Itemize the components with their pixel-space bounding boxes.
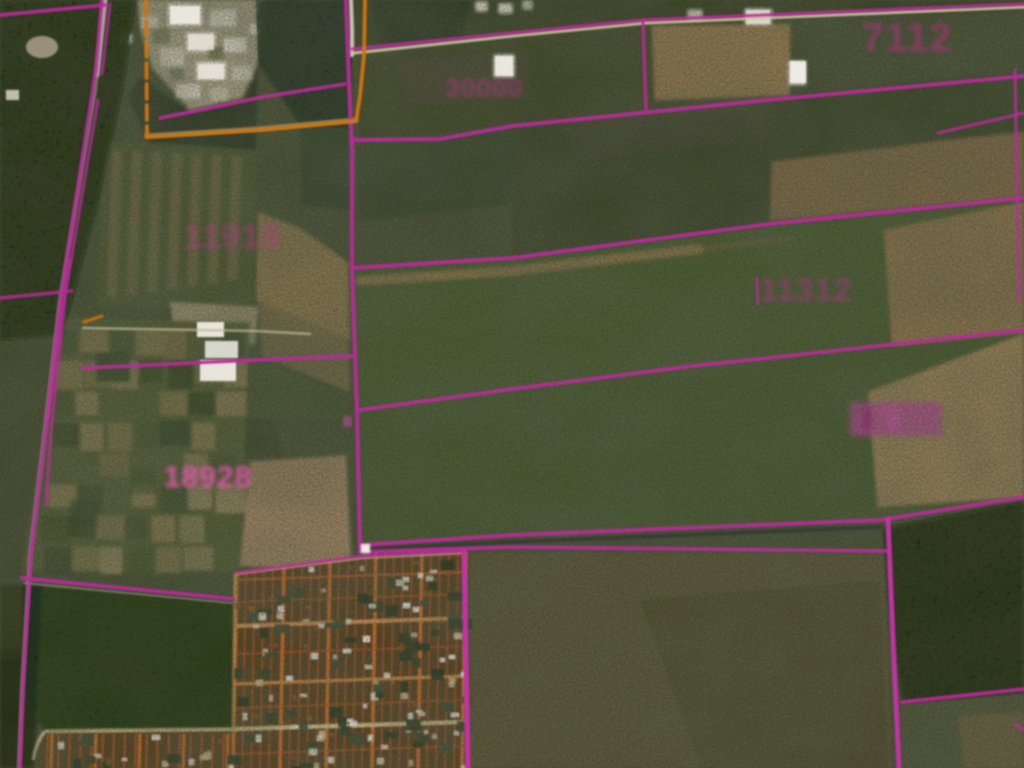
svg-text:30000: 30000 <box>445 73 522 103</box>
svg-text:7112: 7112 <box>862 16 953 60</box>
svg-text:18928: 18928 <box>164 461 252 494</box>
svg-text:11918: 11918 <box>183 218 281 256</box>
svg-text:11312: 11312 <box>760 272 852 308</box>
